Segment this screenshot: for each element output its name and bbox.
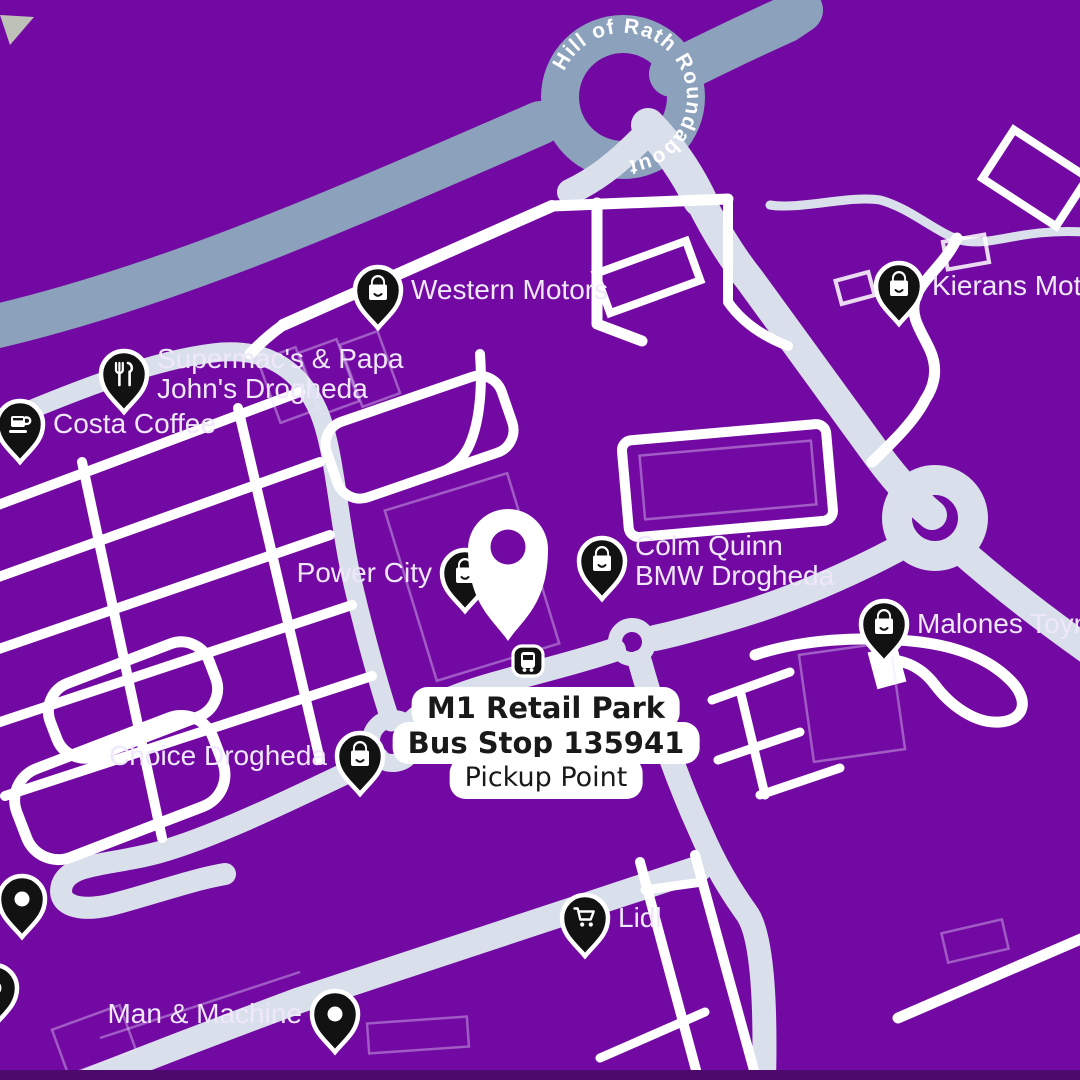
map-stage: Hill of Rath Roundabout Western Motors S… bbox=[0, 0, 1080, 1080]
pickup-line-3: Pickup Point bbox=[450, 757, 643, 799]
dot-pin-icon[interactable] bbox=[0, 957, 26, 1033]
poi-label-line: Choice Drogheda bbox=[109, 741, 327, 771]
poi-label-line: Costa Coffee bbox=[53, 409, 216, 439]
poi-label-man-and-machine: Man & Machine bbox=[107, 999, 302, 1029]
poi-label-line: Kierans Motors bbox=[932, 271, 1080, 301]
poi-label-lidl: Lidl bbox=[618, 903, 662, 933]
shopping-bag-pin-icon[interactable] bbox=[328, 725, 392, 801]
corner-wedge bbox=[0, 15, 34, 45]
poi-label-western-motors: Western Motors bbox=[411, 275, 608, 305]
dot-pin-icon[interactable] bbox=[0, 868, 54, 944]
poi-label-line: Supermac's & Papa bbox=[157, 344, 404, 374]
poi-label-line: Power City bbox=[297, 558, 432, 588]
poi-label-choice-drogheda: Choice Drogheda bbox=[109, 741, 327, 771]
poi-label-power-city: Power City bbox=[297, 558, 432, 588]
pickup-marker-pin[interactable] bbox=[453, 498, 563, 648]
dot-pin-icon[interactable] bbox=[303, 983, 367, 1059]
coffee-pin-icon[interactable] bbox=[0, 393, 52, 469]
poi-label-line: Malones Toymaster bbox=[917, 609, 1080, 639]
cart-pin-icon[interactable] bbox=[553, 887, 617, 963]
poi-label-line: Western Motors bbox=[411, 275, 608, 305]
poi-label-line: Lidl bbox=[618, 903, 662, 933]
poi-label-line: Man & Machine bbox=[107, 999, 302, 1029]
poi-label-line: BMW Drogheda bbox=[635, 561, 834, 591]
poi-label-malones-toymaster: Malones Toymaster bbox=[917, 609, 1080, 639]
shopping-bag-pin-icon[interactable] bbox=[867, 255, 931, 331]
shopping-bag-pin-icon[interactable] bbox=[346, 259, 410, 335]
shopping-bag-pin-icon[interactable] bbox=[852, 593, 916, 669]
bus-stop-icon[interactable] bbox=[510, 643, 546, 679]
shopping-bag-pin-icon[interactable] bbox=[570, 530, 634, 606]
poi-label-colm-quinn-bmw: Colm QuinnBMW Drogheda bbox=[635, 531, 834, 591]
poi-label-line: John's Drogheda bbox=[157, 374, 404, 404]
pickup-label-bubble[interactable]: M1 Retail Park Bus Stop 135941 Pickup Po… bbox=[393, 687, 700, 799]
poi-label-line: Colm Quinn bbox=[635, 531, 834, 561]
poi-label-supermacs-papa-johns: Supermac's & PapaJohn's Drogheda bbox=[157, 344, 404, 404]
poi-label-costa-coffee: Costa Coffee bbox=[53, 409, 216, 439]
bottom-strip bbox=[0, 1070, 1080, 1080]
poi-label-kierans-motors: Kierans Motors bbox=[932, 271, 1080, 301]
